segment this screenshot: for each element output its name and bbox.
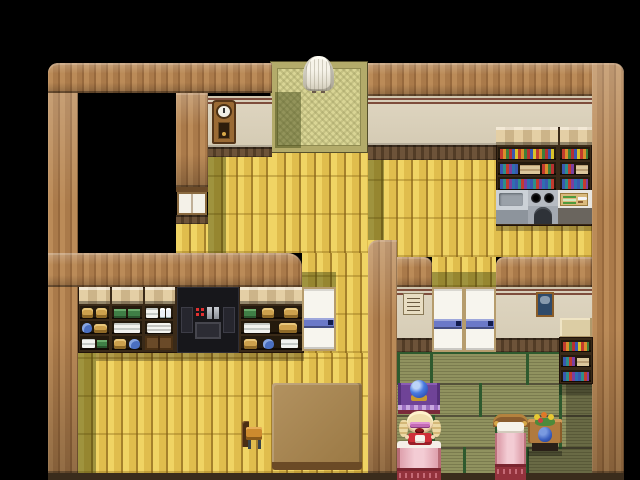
burner	[544, 193, 554, 203]
basket	[262, 308, 274, 318]
basket	[279, 323, 297, 333]
cabinet-doors	[145, 336, 173, 350]
bed-blanket	[495, 433, 526, 466]
red-dress	[408, 433, 432, 445]
door-handle	[488, 321, 493, 326]
game-viewport	[0, 0, 640, 480]
counter-top	[560, 127, 592, 145]
flower-table[interactable]	[528, 414, 562, 456]
white-haired-visitor-sprite[interactable]	[303, 56, 334, 94]
bed-right[interactable]	[493, 414, 528, 480]
bed-frill	[397, 468, 441, 480]
bedroom-sliding-door-right[interactable]	[464, 287, 496, 352]
pantry-counter-unit[interactable]	[496, 127, 592, 226]
floor-entry-corridor[interactable]	[271, 150, 368, 253]
scroll-stack	[577, 358, 589, 366]
counter-top	[145, 287, 175, 304]
dining-table[interactable]	[272, 383, 362, 470]
books	[542, 164, 554, 174]
apron	[415, 435, 425, 443]
plate-stack	[147, 323, 171, 333]
towel-stack	[146, 308, 158, 318]
books	[563, 372, 589, 381]
teal-pot	[82, 323, 92, 333]
sink-basin	[499, 193, 523, 206]
chair-leg	[248, 440, 251, 449]
clock-hand	[223, 108, 225, 113]
sleeping-girl-sprite[interactable]	[399, 410, 441, 446]
wall-bedroom-north-b	[496, 257, 592, 287]
note-text-lines	[407, 297, 420, 311]
leek	[563, 202, 576, 204]
tatami-border	[479, 383, 482, 417]
books	[500, 164, 518, 174]
wall-shadow	[78, 353, 96, 473]
wall-note[interactable]	[403, 293, 424, 315]
wall-kitchen-north	[48, 253, 302, 287]
stove-opening	[534, 207, 552, 224]
flowers	[533, 412, 557, 426]
green-box	[128, 309, 140, 318]
doorway-shadow	[432, 272, 496, 287]
clock-face	[216, 104, 232, 119]
oven-window	[195, 322, 221, 339]
picture-sky	[540, 296, 550, 304]
flower	[541, 412, 547, 418]
leek	[563, 196, 576, 198]
door-handle	[456, 321, 461, 326]
books	[562, 149, 588, 159]
towel-stack	[281, 339, 298, 348]
table-shadow	[528, 451, 562, 456]
wall-end-shoji-panel	[177, 192, 207, 215]
scroll-stack	[576, 165, 588, 174]
bookshelf-shadow	[559, 384, 592, 395]
basket	[94, 324, 107, 333]
wall-end-wainscot	[176, 215, 208, 224]
green-box	[114, 309, 126, 318]
books	[562, 164, 574, 174]
wainscot-bedroom-left	[397, 338, 432, 352]
flower	[548, 414, 554, 420]
chair[interactable]	[241, 419, 264, 451]
tatami-border	[397, 352, 400, 385]
wall-shadow	[208, 157, 226, 253]
wall-bedroom-west	[368, 240, 397, 473]
burner	[531, 193, 541, 203]
cabinet-seam	[158, 336, 160, 350]
shoji-seam	[191, 194, 193, 213]
cutting-board	[560, 193, 588, 206]
clock-pendulum-case	[218, 122, 230, 139]
wall-top-right	[368, 63, 624, 96]
bedroom-sliding-door-left[interactable]	[432, 287, 464, 352]
books	[563, 342, 589, 351]
table-legs	[532, 443, 558, 451]
blue-pot	[263, 339, 274, 349]
picture-frame[interactable]	[536, 292, 554, 317]
kitchen-sliding-door[interactable]	[302, 287, 336, 351]
wall-shadow	[368, 160, 384, 240]
stove[interactable]	[528, 190, 558, 224]
grandfather-clock[interactable]	[212, 100, 236, 144]
hand	[431, 435, 435, 439]
hand	[405, 435, 409, 439]
basket	[114, 339, 126, 349]
kitchen-sink[interactable]	[496, 190, 528, 224]
tatami-border	[526, 352, 529, 385]
towel-stack	[82, 339, 95, 348]
basket	[82, 308, 93, 318]
counter-shadow	[96, 353, 304, 361]
chair-leg	[258, 440, 261, 449]
floor-below-wall-end[interactable]	[176, 223, 208, 253]
wall-top-left	[48, 63, 272, 93]
clock-pendulum	[222, 132, 226, 136]
green-box	[244, 309, 256, 318]
bedroom-bookshelf[interactable]	[559, 337, 593, 384]
chair-seat	[246, 427, 262, 440]
long-white-hair	[303, 56, 334, 91]
bed-frill	[495, 464, 526, 480]
bed-left[interactable]	[397, 441, 441, 480]
basket	[96, 308, 107, 318]
canister	[214, 307, 219, 319]
flower-vase	[538, 427, 552, 442]
towel-stack	[114, 323, 140, 333]
knife-handle	[578, 201, 583, 203]
indicator-light	[196, 313, 199, 316]
counter-top	[240, 287, 303, 304]
counter-top	[79, 287, 110, 304]
cutting-board-station[interactable]	[558, 190, 592, 224]
range-glass-panel	[181, 307, 193, 333]
scroll-stack	[520, 165, 540, 174]
basket	[244, 339, 257, 349]
indicator-light	[201, 308, 204, 311]
sink-drain	[509, 198, 512, 201]
crystal-ball[interactable]	[410, 380, 428, 398]
indicator-light	[196, 308, 199, 311]
indicator-light	[201, 313, 204, 316]
canister	[207, 307, 212, 319]
counter-top	[112, 287, 143, 304]
blue-pot	[129, 339, 140, 349]
wall-bottom-edge	[48, 473, 624, 480]
frill-pattern	[497, 469, 524, 474]
bed-blanket	[397, 448, 441, 470]
counter-top	[496, 127, 558, 145]
wall-right	[592, 63, 624, 473]
frill-pattern	[399, 473, 439, 478]
tatami-border	[430, 352, 433, 385]
wall-scroll[interactable]	[560, 318, 592, 338]
books	[500, 179, 554, 189]
wall-bedroom-north-a	[397, 257, 432, 287]
flower	[538, 418, 543, 423]
white-jar	[166, 308, 171, 318]
green-box	[97, 340, 107, 348]
doorway-shadow	[302, 272, 336, 287]
books	[562, 179, 588, 189]
leek	[563, 199, 576, 201]
basket	[284, 308, 298, 318]
knife	[578, 197, 587, 200]
door-handle	[328, 320, 333, 325]
books	[500, 149, 554, 159]
kitchen-counter-row[interactable]	[78, 287, 304, 353]
black-range[interactable]	[177, 287, 239, 353]
range-glass-panel	[223, 307, 235, 333]
wall-shadow	[275, 92, 301, 148]
wainscot-alcove	[208, 147, 272, 157]
towel-stack	[244, 323, 270, 333]
books	[563, 357, 575, 366]
white-jar	[160, 308, 165, 318]
wall-mid-vertical	[176, 93, 208, 187]
